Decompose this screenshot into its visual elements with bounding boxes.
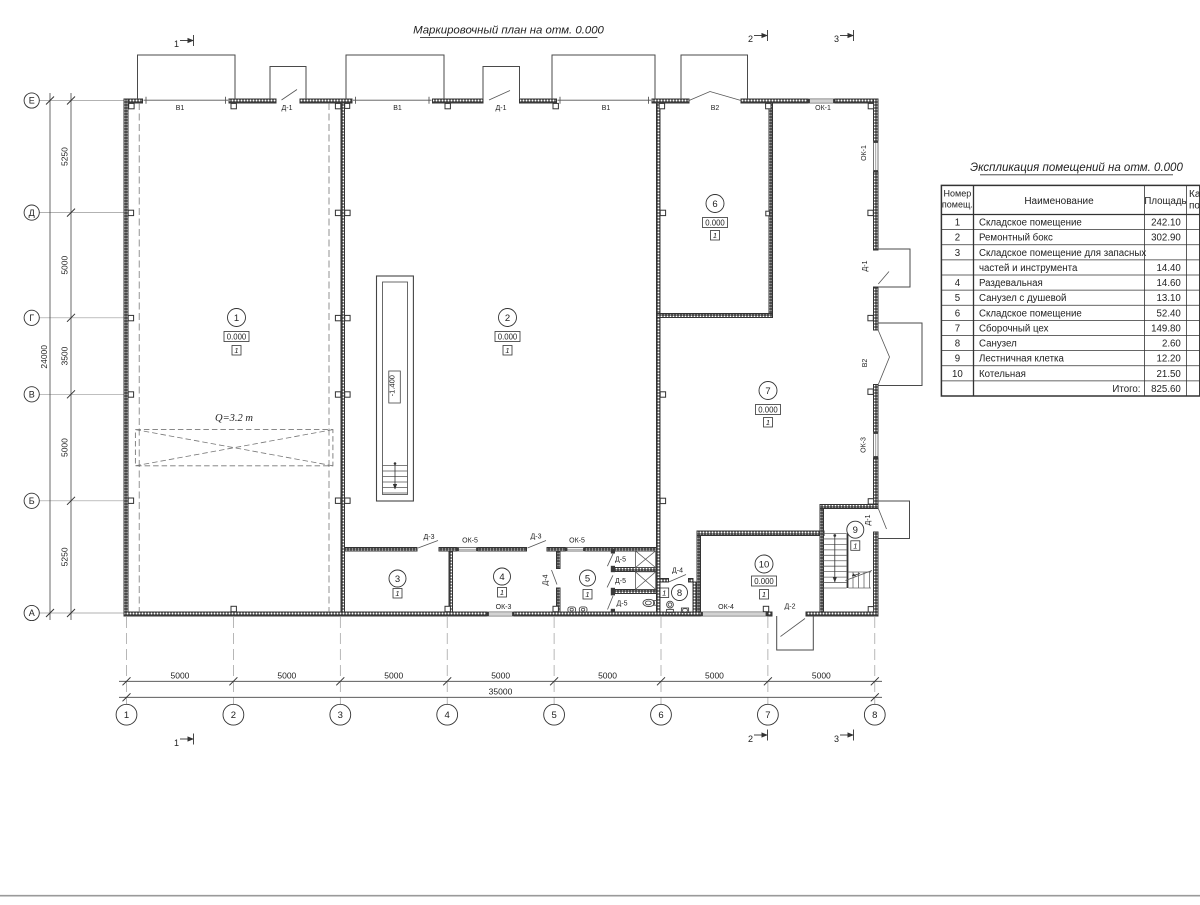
svg-text:1: 1 — [234, 346, 238, 355]
svg-text:5000: 5000 — [491, 670, 510, 680]
svg-text:2: 2 — [748, 734, 753, 744]
svg-text:ОК-5: ОК-5 — [569, 538, 585, 545]
svg-text:2: 2 — [955, 233, 960, 244]
svg-text:10: 10 — [759, 559, 770, 570]
svg-text:5000: 5000 — [598, 670, 617, 680]
svg-text:Д-1: Д-1 — [865, 514, 872, 525]
svg-text:8: 8 — [677, 588, 682, 599]
svg-text:4: 4 — [955, 278, 961, 289]
svg-text:0.000: 0.000 — [498, 332, 518, 341]
svg-text:0.000: 0.000 — [758, 405, 778, 414]
svg-text:-1.400: -1.400 — [388, 375, 397, 396]
svg-text:3: 3 — [395, 574, 400, 585]
svg-text:Б: Б — [29, 496, 35, 506]
svg-text:В: В — [29, 390, 35, 400]
svg-text:2: 2 — [748, 34, 753, 44]
svg-text:6: 6 — [712, 199, 717, 210]
svg-text:Складское помещение для запасн: Складское помещение для запасных — [979, 248, 1146, 259]
svg-text:21.50: 21.50 — [1157, 369, 1182, 380]
svg-text:14.40: 14.40 — [1157, 263, 1182, 274]
svg-text:1: 1 — [505, 346, 509, 355]
svg-text:2: 2 — [231, 710, 236, 721]
svg-text:4: 4 — [445, 710, 450, 721]
svg-text:0.000: 0.000 — [705, 218, 725, 227]
svg-text:3: 3 — [955, 248, 960, 259]
svg-text:Итого:: Итого: — [1112, 384, 1140, 395]
svg-text:Раздевальная: Раздевальная — [979, 278, 1043, 289]
svg-text:242.10: 242.10 — [1151, 218, 1181, 229]
svg-text:8: 8 — [872, 710, 877, 721]
svg-text:35000: 35000 — [489, 686, 513, 696]
svg-text:1: 1 — [762, 590, 766, 599]
svg-text:5000: 5000 — [60, 438, 70, 457]
svg-text:1: 1 — [234, 313, 239, 324]
svg-text:В2: В2 — [862, 359, 869, 368]
svg-text:Санузел: Санузел — [979, 339, 1017, 350]
svg-text:ОК-5: ОК-5 — [462, 538, 478, 545]
svg-text:5000: 5000 — [705, 670, 724, 680]
svg-text:1: 1 — [124, 710, 129, 721]
svg-text:1: 1 — [662, 589, 666, 598]
svg-text:Д-3: Д-3 — [531, 534, 542, 541]
svg-text:2: 2 — [505, 313, 510, 324]
svg-text:1: 1 — [395, 589, 399, 598]
svg-text:ОК-3: ОК-3 — [496, 604, 512, 611]
svg-text:А: А — [29, 608, 35, 618]
svg-text:3: 3 — [834, 734, 839, 744]
svg-text:Ка: Ка — [1189, 189, 1200, 200]
svg-text:5000: 5000 — [384, 670, 403, 680]
svg-text:Д-4: Д-4 — [543, 574, 550, 585]
svg-text:по: по — [1189, 201, 1200, 212]
svg-text:302.90: 302.90 — [1151, 233, 1181, 244]
svg-text:5000: 5000 — [60, 255, 70, 274]
svg-text:2.60: 2.60 — [1162, 339, 1181, 350]
svg-text:5000: 5000 — [277, 670, 296, 680]
svg-text:Д-5: Д-5 — [615, 578, 626, 585]
svg-text:7: 7 — [765, 710, 770, 721]
svg-text:12.20: 12.20 — [1157, 354, 1182, 365]
svg-text:Лестничная клетка: Лестничная клетка — [979, 354, 1064, 365]
svg-text:825.60: 825.60 — [1151, 384, 1181, 395]
svg-text:1: 1 — [174, 738, 179, 748]
svg-text:1: 1 — [713, 231, 717, 240]
svg-text:Д-4: Д-4 — [672, 568, 683, 575]
svg-text:помещ.: помещ. — [942, 200, 973, 210]
svg-text:частей и инструмента: частей и инструмента — [979, 263, 1078, 274]
svg-text:Складское помещение: Складское помещение — [979, 218, 1082, 229]
svg-text:1: 1 — [174, 39, 179, 49]
svg-text:Е: Е — [29, 96, 35, 106]
svg-text:4: 4 — [499, 572, 504, 583]
svg-text:7: 7 — [955, 323, 960, 334]
svg-text:5000: 5000 — [812, 670, 831, 680]
svg-text:Д-3: Д-3 — [424, 534, 435, 541]
svg-text:0.000: 0.000 — [227, 332, 247, 341]
svg-text:ОК-4: ОК-4 — [718, 604, 734, 611]
svg-text:1: 1 — [500, 588, 504, 597]
svg-text:6: 6 — [955, 308, 960, 319]
svg-text:В1: В1 — [176, 105, 185, 112]
svg-text:Маркировочный план на отм. 0.0: Маркировочный план на отм. 0.000 — [413, 25, 604, 37]
svg-text:149.80: 149.80 — [1151, 323, 1181, 334]
svg-text:9: 9 — [853, 525, 858, 536]
svg-text:Сборочный цех: Сборочный цех — [979, 323, 1049, 334]
svg-text:13.10: 13.10 — [1157, 293, 1182, 304]
svg-text:3: 3 — [834, 34, 839, 44]
svg-text:5250: 5250 — [60, 147, 70, 166]
svg-text:6: 6 — [658, 710, 663, 721]
svg-text:Котельная: Котельная — [979, 369, 1026, 380]
svg-text:Ремонтный бокс: Ремонтный бокс — [979, 233, 1053, 244]
svg-text:Санузел с душевой: Санузел с душевой — [979, 293, 1066, 304]
svg-text:Д-1: Д-1 — [862, 260, 869, 271]
svg-text:0.000: 0.000 — [754, 577, 774, 586]
svg-text:Наименование: Наименование — [1024, 196, 1094, 207]
svg-text:Д-1: Д-1 — [282, 105, 293, 112]
svg-text:8: 8 — [955, 339, 960, 350]
svg-text:Q=3.2 т: Q=3.2 т — [215, 413, 253, 424]
svg-text:Д-5: Д-5 — [617, 601, 628, 608]
svg-text:3: 3 — [338, 710, 343, 721]
svg-text:Д-1: Д-1 — [496, 105, 507, 112]
svg-text:52.40: 52.40 — [1157, 308, 1182, 319]
svg-text:24000: 24000 — [39, 345, 49, 369]
svg-text:14.60: 14.60 — [1157, 278, 1182, 289]
svg-text:3500: 3500 — [60, 346, 70, 365]
svg-text:В1: В1 — [393, 105, 402, 112]
svg-text:Номер: Номер — [944, 189, 972, 199]
svg-text:В2: В2 — [711, 105, 720, 112]
svg-text:ОК-1: ОК-1 — [815, 105, 831, 112]
svg-text:Площадь: Площадь — [1144, 196, 1186, 207]
svg-text:Экспликация помещений на отм.: Экспликация помещений на отм. 0.000 — [970, 162, 1183, 174]
svg-text:1: 1 — [853, 541, 857, 550]
svg-text:1: 1 — [585, 590, 589, 599]
svg-text:ОК-3: ОК-3 — [861, 437, 868, 453]
svg-text:ОК-1: ОК-1 — [861, 145, 868, 161]
svg-text:5000: 5000 — [170, 670, 189, 680]
svg-text:В1: В1 — [602, 105, 611, 112]
svg-text:Д-5: Д-5 — [615, 556, 626, 563]
svg-text:9: 9 — [955, 354, 960, 365]
svg-text:5: 5 — [551, 710, 556, 721]
svg-text:1: 1 — [766, 418, 770, 427]
svg-text:10: 10 — [952, 369, 963, 380]
svg-text:Д: Д — [29, 208, 35, 218]
svg-text:Д-2: Д-2 — [785, 604, 796, 611]
svg-text:5250: 5250 — [60, 547, 70, 566]
svg-text:1: 1 — [955, 218, 960, 229]
svg-text:Складское помещение: Складское помещение — [979, 308, 1082, 319]
svg-text:5: 5 — [955, 293, 960, 304]
svg-text:7: 7 — [765, 386, 770, 397]
svg-text:Г: Г — [29, 313, 34, 323]
svg-text:5: 5 — [585, 573, 590, 584]
